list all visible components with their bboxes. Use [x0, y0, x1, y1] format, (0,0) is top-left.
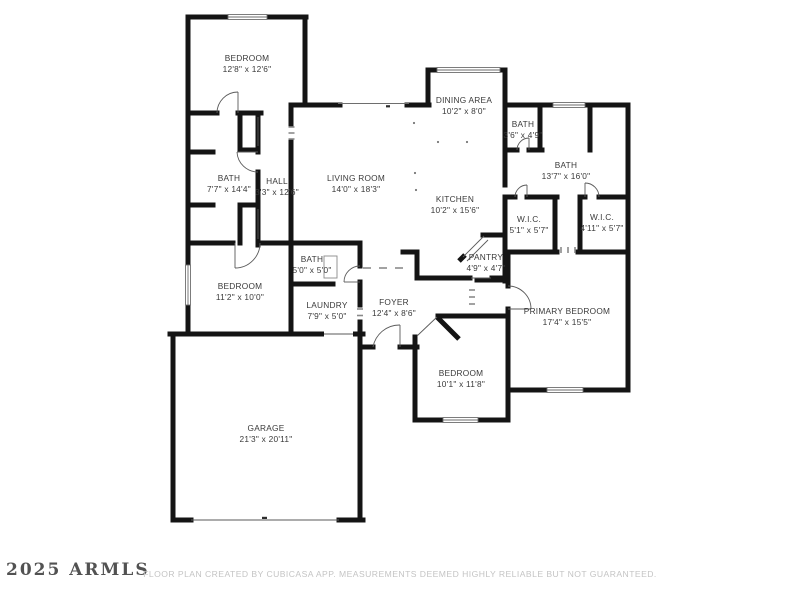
window	[443, 418, 478, 423]
label-garage-dims: 21'3" x 20'11"	[239, 434, 292, 444]
label-foyer-name: FOYER	[379, 297, 409, 307]
label-bath-right-dims: 13'7" x 16'0"	[542, 171, 591, 181]
window	[437, 68, 500, 73]
label-bath-left-dims: 7'7" x 14'4"	[207, 184, 251, 194]
thick-door-leaves	[437, 255, 465, 339]
floor-plan-drawing: BEDROOM 12'8" x 12'6" DINING AREA 10'2" …	[0, 0, 800, 600]
label-wic-left-dims: 5'1" x 5'7"	[509, 225, 548, 235]
window	[547, 388, 583, 393]
label-bath-center-dims: 5'0" x 5'0"	[292, 265, 331, 275]
label-living-dims: 14'0" x 18'3"	[332, 184, 381, 194]
label-kitchen-dims: 10'2" x 15'6"	[431, 205, 480, 215]
label-living-name: LIVING ROOM	[327, 173, 385, 183]
label-wic-right-dims: 4'11" x 5'7"	[580, 223, 623, 233]
label-foyer-dims: 12'4" x 8'6"	[372, 308, 416, 318]
label-bath-right-name: BATH	[555, 160, 578, 170]
label-laundry-dims: 7'9" x 5'0"	[307, 311, 346, 321]
label-bedroom-top-left-dims: 12'8" x 12'6"	[223, 64, 272, 74]
label-pantry-dims: 4'9" x 4'7"	[466, 263, 505, 273]
window	[553, 103, 585, 108]
label-kitchen-name: KITCHEN	[436, 194, 474, 204]
label-bedroom-top-left-name: BEDROOM	[225, 53, 270, 63]
label-pantry-name: PANTRY	[469, 252, 504, 262]
window	[228, 15, 267, 20]
label-bedroom-bottom-name: BEDROOM	[439, 368, 484, 378]
window	[186, 265, 191, 305]
label-primary-bedroom-name: PRIMARY BEDROOM	[524, 306, 610, 316]
label-bedroom-bottom-dims: 10'1" x 11'8"	[437, 379, 485, 389]
label-wic-right-name: W.I.C.	[590, 212, 614, 222]
label-laundry-name: LAUNDRY	[306, 300, 347, 310]
label-bath-top-dims: 3'6" x 4'9"	[503, 130, 542, 140]
floor-plan-page: BEDROOM 12'8" x 12'6" DINING AREA 10'2" …	[0, 0, 800, 600]
label-dining-dims: 10'2" x 8'0"	[442, 106, 486, 116]
label-garage-name: GARAGE	[247, 423, 284, 433]
label-bath-left-name: BATH	[218, 173, 241, 183]
cubicasa-disclaimer: FLOOR PLAN CREATED BY CUBICASA APP. MEAS…	[0, 569, 800, 579]
label-bath-top-name: BATH	[512, 119, 535, 129]
sliding-window-opening	[338, 104, 409, 108]
label-dining-name: DINING AREA	[436, 95, 492, 105]
label-bedroom-left-name: BEDROOM	[218, 281, 263, 291]
label-bedroom-left-dims: 11'2" x 10'0"	[216, 292, 264, 302]
label-hall-dims: 3'3" x 12'6"	[255, 187, 299, 197]
label-wic-left-name: W.I.C.	[517, 214, 541, 224]
label-bath-center-name: BATH	[301, 254, 324, 264]
label-primary-bedroom-dims: 17'4" x 15'5"	[543, 317, 592, 327]
label-hall-name: HALL	[266, 176, 288, 186]
bedroom-corner-door-leaf	[437, 317, 459, 339]
